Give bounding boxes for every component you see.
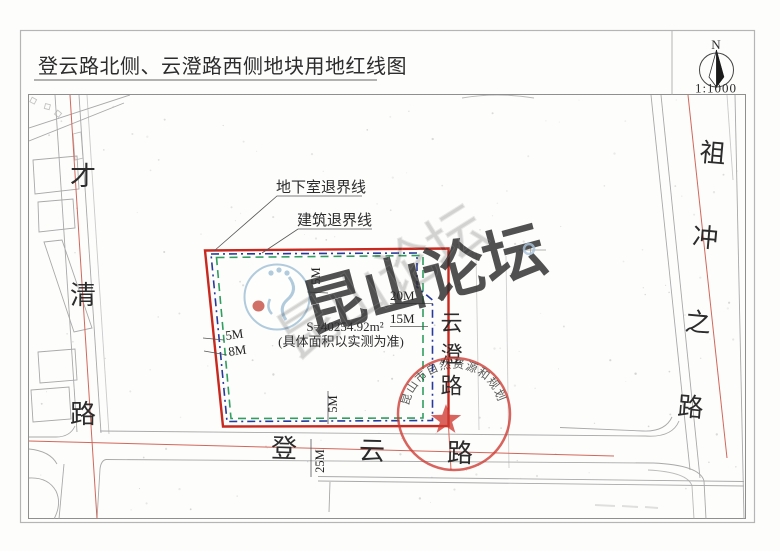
dim-left-upper: 5M — [224, 326, 244, 343]
redline-map-svg: 登云路北侧、云澄路西侧地块用地红线图 N 1:1000 — [0, 0, 780, 551]
basement-setback-label: 地下室退界线 — [276, 179, 366, 196]
stamp-star-icon — [431, 404, 461, 433]
road-label-west: 才清路 — [67, 162, 96, 519]
north-arrow-icon: N — [700, 37, 734, 87]
scale-label: 1:1000 — [695, 81, 737, 96]
sheet-title: 登云路北侧、云澄路西侧地块用地红线图 — [38, 55, 407, 78]
dim-left-lower: 8M — [227, 342, 247, 359]
road-label-east: 祖冲之路 — [668, 138, 727, 479]
north-letter: N — [711, 37, 721, 52]
dim-bottom-inset: 5M — [326, 395, 340, 412]
drawing-sheet: 登云路北侧、云澄路西侧地块用地红线图 N 1:1000 — [0, 0, 780, 551]
building-setback-label: 建筑退界线 — [297, 212, 372, 229]
